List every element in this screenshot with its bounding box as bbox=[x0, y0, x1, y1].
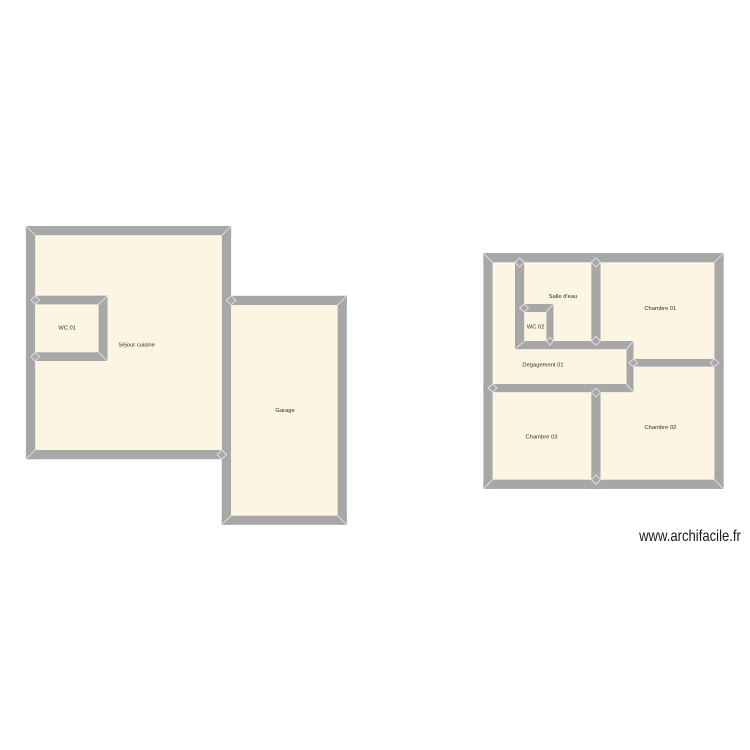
svg-text:Salle d'eau: Salle d'eau bbox=[549, 294, 578, 300]
svg-text:Chambre 01: Chambre 01 bbox=[644, 306, 676, 312]
svg-text:WC 01: WC 01 bbox=[58, 326, 76, 332]
svg-text:Degagement 01: Degagement 01 bbox=[522, 363, 563, 369]
svg-text:Garage: Garage bbox=[275, 408, 294, 414]
svg-text:Séjour cuisine: Séjour cuisine bbox=[118, 343, 154, 349]
svg-text:Chambre 02: Chambre 02 bbox=[644, 425, 676, 431]
svg-text:www.archifacile.fr: www.archifacile.fr bbox=[638, 528, 741, 545]
svg-text:WC 02: WC 02 bbox=[527, 324, 545, 330]
svg-text:Chambre 03: Chambre 03 bbox=[526, 435, 558, 441]
